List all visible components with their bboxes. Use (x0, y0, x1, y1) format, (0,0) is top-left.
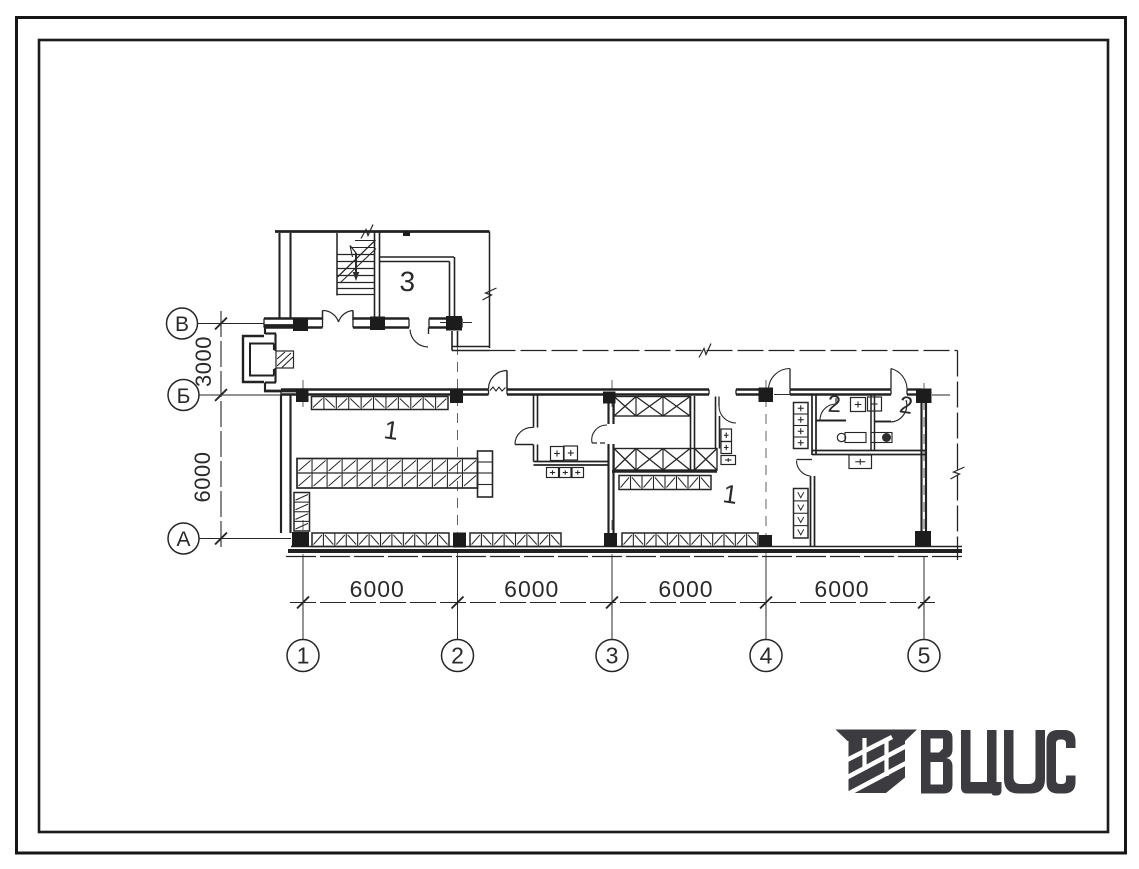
svg-text:6000: 6000 (504, 576, 559, 602)
svg-text:В: В (175, 313, 189, 336)
svg-text:6000: 6000 (190, 452, 215, 503)
svg-text:Б: Б (177, 385, 191, 408)
svg-text:А: А (176, 528, 190, 551)
svg-text:3: 3 (399, 266, 416, 298)
svg-text:6000: 6000 (814, 576, 869, 602)
svg-text:2: 2 (451, 643, 464, 669)
svg-text:5: 5 (918, 643, 931, 669)
svg-text:3000: 3000 (191, 336, 216, 387)
svg-text:1: 1 (297, 643, 310, 669)
svg-text:6000: 6000 (658, 576, 713, 602)
svg-text:4: 4 (760, 643, 773, 669)
svg-text:6000: 6000 (350, 576, 405, 602)
svg-text:2: 2 (827, 391, 841, 418)
svg-text:3: 3 (606, 643, 619, 669)
